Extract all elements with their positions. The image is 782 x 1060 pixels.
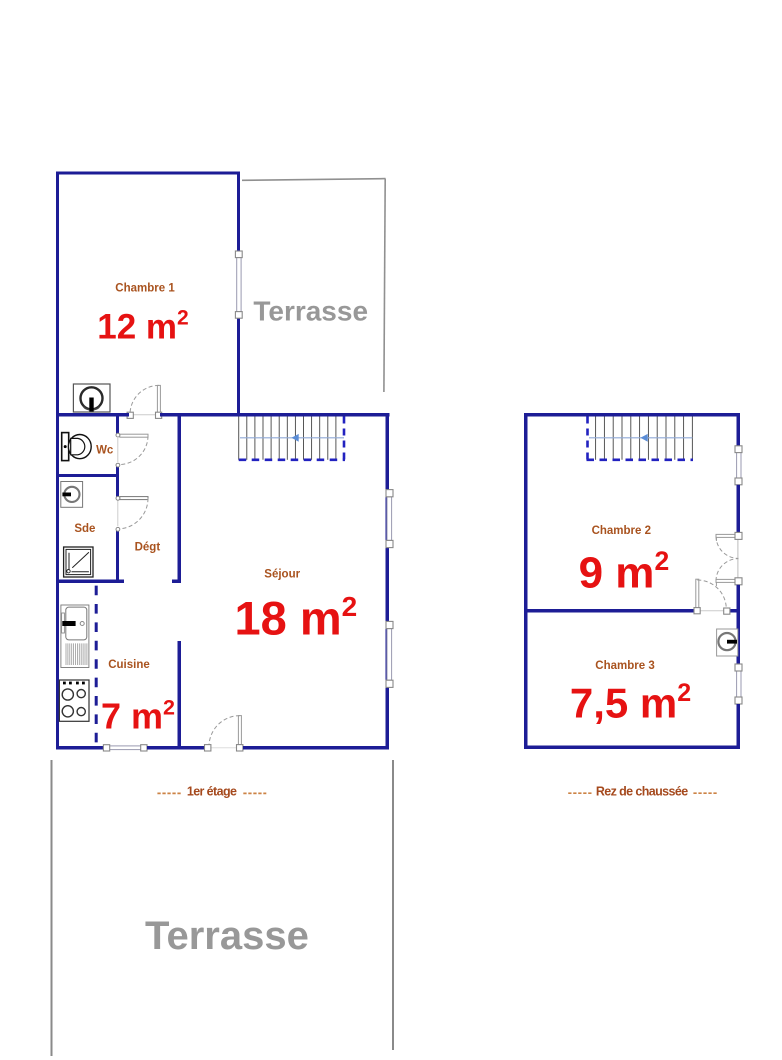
svg-text:Chambre 3: Chambre 3 [595,660,654,672]
svg-text:Terrasse: Terrasse [253,295,368,326]
svg-text:Wc: Wc [96,444,114,456]
svg-text:Séjour: Séjour [264,568,300,580]
svg-text:7,5 m2: 7,5 m2 [570,679,691,727]
svg-text:1er étage: 1er étage [187,785,237,799]
svg-text:Chambre 1: Chambre 1 [115,283,175,295]
svg-text:Chambre 2: Chambre 2 [592,525,651,537]
svg-text:12 m2: 12 m2 [97,306,188,346]
svg-text:Cuisine: Cuisine [108,659,150,671]
svg-text:Sde: Sde [74,523,95,535]
svg-text:18 m2: 18 m2 [235,591,358,645]
svg-text:Rez de chaussée: Rez de chaussée [596,785,688,799]
svg-text:Terrasse: Terrasse [145,914,309,958]
svg-text:Dégt: Dégt [135,541,161,553]
